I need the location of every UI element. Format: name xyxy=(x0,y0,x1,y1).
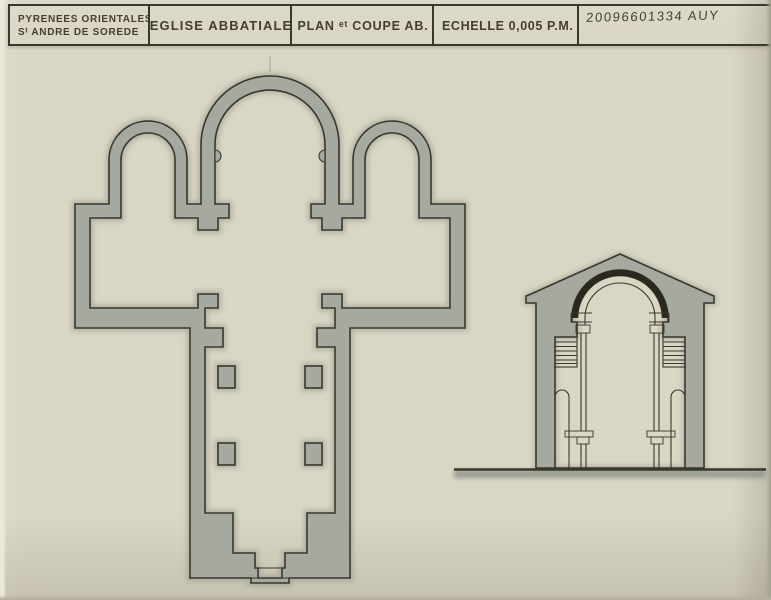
apse-respond-shaft xyxy=(319,150,325,162)
section-walls xyxy=(526,254,714,468)
paper-edge-shadow-right xyxy=(766,0,771,600)
pier-base-block xyxy=(577,437,589,444)
paper-edge-shadow-bottom xyxy=(0,595,771,600)
vault-intrados xyxy=(585,283,655,325)
floor-plan xyxy=(75,56,465,583)
pier-base-block xyxy=(651,437,663,444)
drawings-svg xyxy=(0,0,771,600)
nave-pier xyxy=(305,366,322,388)
plan-shading-halo xyxy=(75,76,465,583)
nave-pier xyxy=(218,366,235,388)
pier-shafts xyxy=(581,333,659,468)
cross-section xyxy=(454,254,766,478)
aisle-roof-hatch xyxy=(555,337,685,367)
nave-pier xyxy=(305,443,322,465)
nave-pier xyxy=(218,443,235,465)
section-shading-halo xyxy=(454,254,766,478)
drawing-sheet: PYRENEES ORIENTALES Sᵗ ANDRE DE SOREDE E… xyxy=(0,0,771,600)
apse-respond-shaft xyxy=(215,150,221,162)
paper-edge-left xyxy=(0,0,6,600)
